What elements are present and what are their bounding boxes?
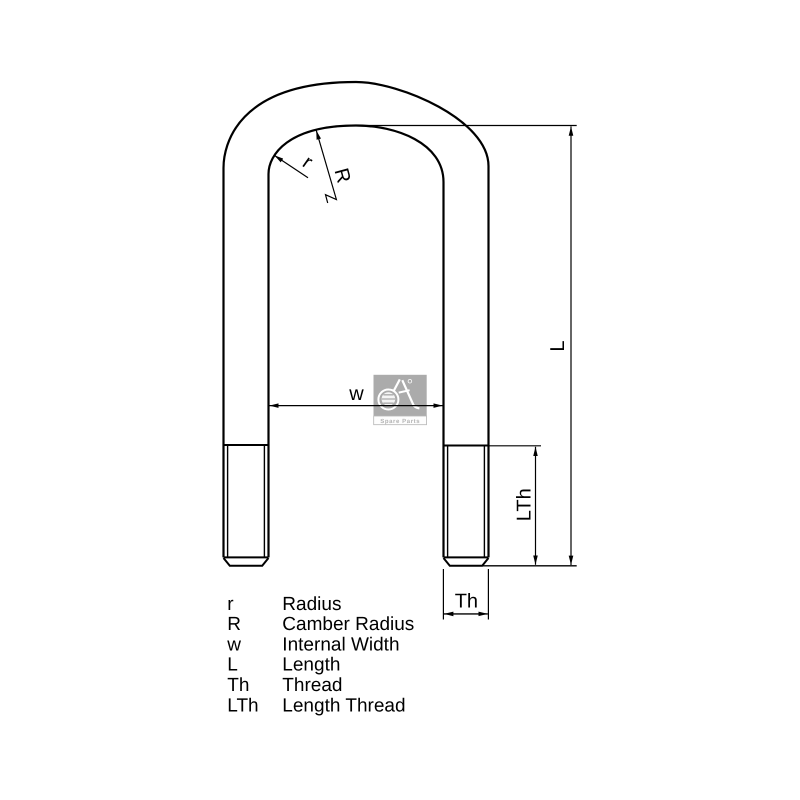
svg-text:L: L [547,340,569,351]
svg-text:Length Thread: Length Thread [282,695,405,716]
svg-text:R: R [330,166,355,186]
svg-text:LTh: LTh [227,695,258,716]
svg-text:Camber Radius: Camber Radius [282,614,414,635]
svg-text:w: w [348,383,364,405]
svg-text:Internal Width: Internal Width [282,634,399,655]
svg-text:LTh: LTh [514,488,536,521]
svg-text:Th: Th [227,675,249,696]
svg-text:R: R [227,614,241,635]
svg-text:w: w [226,634,241,655]
svg-text:r: r [298,151,316,173]
svg-text:Spare Parts: Spare Parts [380,418,420,425]
svg-text:L: L [227,655,238,676]
svg-text:Length: Length [282,655,340,676]
svg-text:Thread: Thread [282,675,342,696]
svg-text:r: r [227,594,234,615]
svg-text:Th: Th [455,591,478,613]
svg-text:Radius: Radius [282,594,341,615]
